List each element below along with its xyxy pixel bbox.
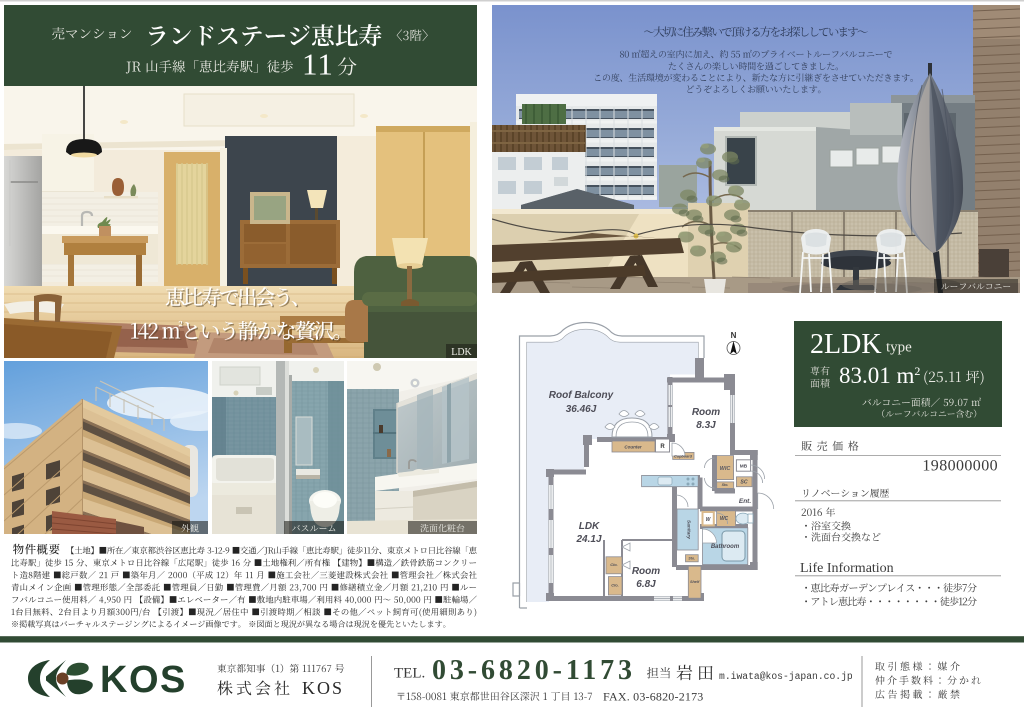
- svg-text:TEL.: TEL.: [394, 666, 425, 682]
- svg-text:8.3J: 8.3J: [696, 420, 716, 431]
- svg-text:Room: Room: [632, 566, 660, 577]
- svg-text:Clo.: Clo.: [611, 583, 619, 588]
- svg-text:WC: WC: [720, 516, 729, 522]
- svg-text:FAX. 03-6820-2173: FAX. 03-6820-2173: [603, 690, 704, 704]
- svg-text:N: N: [731, 331, 737, 340]
- svg-text:type: type: [886, 340, 912, 356]
- svg-text:LDK: LDK: [579, 521, 600, 532]
- svg-text:Sto.: Sto.: [688, 557, 695, 561]
- svg-text:SC: SC: [740, 480, 747, 486]
- svg-text:Roof Balcony: Roof Balcony: [549, 390, 614, 401]
- svg-text:11: 11: [302, 47, 334, 82]
- svg-text:KOS: KOS: [302, 678, 344, 698]
- svg-text:MB: MB: [740, 464, 748, 470]
- svg-text:24.1J: 24.1J: [575, 534, 601, 545]
- svg-text:R: R: [660, 444, 665, 450]
- svg-text:Bathroom: Bathroom: [711, 544, 740, 550]
- svg-text:Life Information: Life Information: [800, 561, 894, 576]
- svg-text:Ent.: Ent.: [739, 498, 751, 505]
- svg-text:03-6820-1173: 03-6820-1173: [432, 655, 636, 686]
- svg-text:83.01 m2: 83.01 m2: [839, 363, 920, 388]
- svg-text:Counter: Counter: [624, 445, 641, 450]
- svg-text:Room: Room: [692, 407, 720, 418]
- svg-text:Sanitary: Sanitary: [686, 520, 692, 539]
- svg-text:2LDK: 2LDK: [810, 329, 882, 360]
- svg-text:LDK: LDK: [451, 347, 472, 358]
- svg-text:KOS: KOS: [100, 659, 187, 701]
- svg-text:6.8J: 6.8J: [636, 579, 656, 590]
- svg-text:198000000: 198000000: [922, 458, 998, 475]
- svg-text:Shelf: Shelf: [690, 580, 700, 584]
- svg-text:WIC: WIC: [720, 466, 732, 472]
- svg-text:Cupboard: Cupboard: [674, 455, 693, 459]
- svg-text:m.iwata@kos-japan.co.jp: m.iwata@kos-japan.co.jp: [719, 671, 853, 682]
- svg-text:Clo.: Clo.: [610, 562, 618, 567]
- svg-text:36.46J: 36.46J: [566, 404, 597, 415]
- svg-text:Sto.: Sto.: [722, 483, 729, 487]
